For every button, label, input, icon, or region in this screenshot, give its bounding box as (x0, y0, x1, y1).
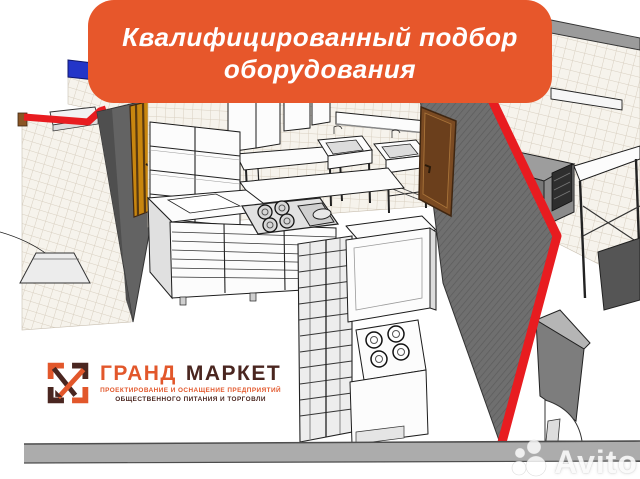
slatted-rack (298, 236, 352, 442)
grand-market-logo-icon (46, 361, 90, 405)
upper-cabinet (284, 100, 310, 131)
stockpot-stove-unit (346, 216, 436, 444)
gray-trolley (536, 310, 590, 441)
logo-tagline-line1: ПРОЕКТИРОВАНИЕ И ОСНАЩЕНИЕ ПРЕДПРИЯТИЙ (100, 386, 281, 395)
logo-tagline-line2: ОБЩЕСТВЕННОГО ПИТАНИЯ И ТОРГОВЛИ (100, 395, 281, 404)
logo-text-block: ГРАНДМАРКЕТ ПРОЕКТИРОВАНИЕ И ОСНАЩЕНИЕ П… (100, 362, 281, 405)
upper-cabinet (256, 100, 280, 148)
logo-title: ГРАНДМАРКЕТ (100, 362, 281, 386)
logo-tagline: ПРОЕКТИРОВАНИЕ И ОСНАЩЕНИЕ ПРЕДПРИЯТИЙ О… (100, 386, 281, 405)
logo-title-part1: ГРАНД (100, 362, 177, 385)
logo-title-part2: МАРКЕТ (186, 362, 281, 385)
upper-cabinet (312, 100, 330, 125)
headline-banner: Квалифицированный подбор оборудования (88, 0, 552, 103)
brown-door (419, 107, 456, 216)
grand-market-logo: ГРАНДМАРКЕТ ПРОЕКТИРОВАНИЕ И ОСНАЩЕНИЕ П… (46, 361, 281, 405)
baseboard (24, 441, 640, 463)
headline-line-1: Квалифицированный подбор (122, 21, 518, 53)
headline-line-2: оборудования (224, 53, 416, 85)
ad-image: Квалифицированный подбор оборудования ГР… (0, 0, 640, 479)
